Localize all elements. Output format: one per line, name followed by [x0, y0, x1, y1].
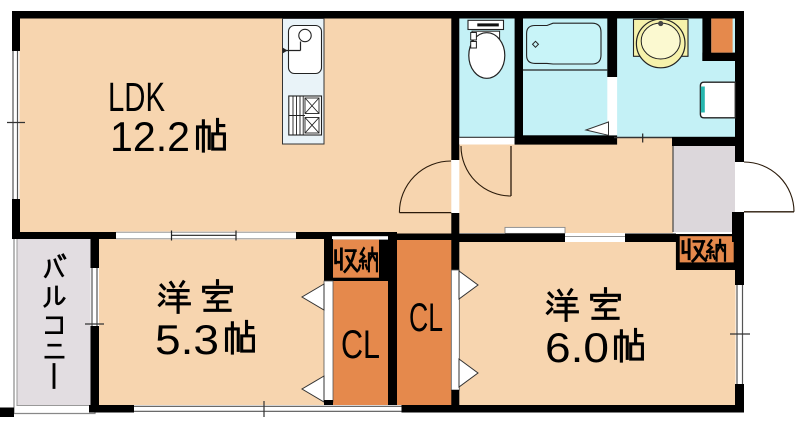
svg-text:CL: CL — [409, 296, 443, 340]
svg-text:12.2: 12.2 — [110, 113, 190, 160]
svg-text:6.0: 6.0 — [545, 324, 609, 371]
svg-text:5.3: 5.3 — [155, 316, 219, 363]
svg-text:CL: CL — [341, 323, 380, 367]
